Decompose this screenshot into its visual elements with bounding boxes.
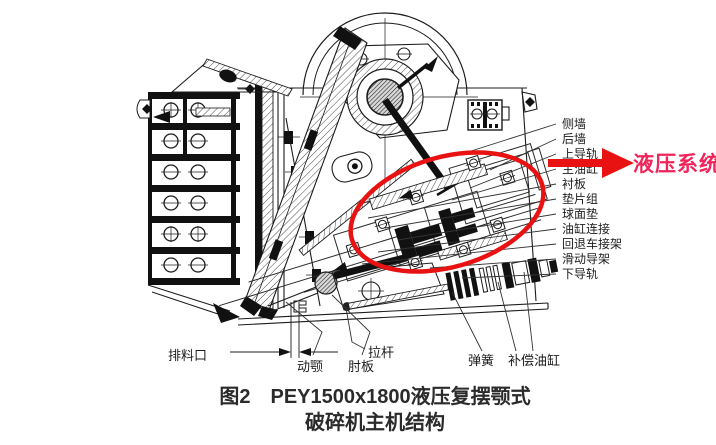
dim-arrow-right xyxy=(299,348,311,356)
label-liner-plate: 衬板 xyxy=(562,177,586,191)
eccentric-shaft xyxy=(367,79,403,115)
compensation-cylinder-body xyxy=(512,261,530,285)
left-arrow-marker xyxy=(153,111,170,123)
jaw-crusher-diagram: 侧墙 后墙 上导轨 主油缸 衬板 垫片组 球面垫 油缸连接 回退车接架 滑动导架… xyxy=(0,0,716,445)
label-retract-carriage-frame: 回退车接架 xyxy=(562,236,622,251)
label-movable-jaw: 动颚 xyxy=(297,359,323,374)
dim-arrow-left xyxy=(279,348,291,356)
bracket-detail-box xyxy=(468,100,509,130)
label-side-wall: 侧墙 xyxy=(562,117,586,131)
label-spring: 弹簧 xyxy=(468,353,494,368)
label-compensation-cylinder: 补偿油缸 xyxy=(508,353,560,368)
red-arrow-head xyxy=(602,148,634,178)
spring-coils xyxy=(445,268,479,301)
label-sliding-guide-frame: 滑动导架 xyxy=(562,252,610,266)
label-upper-guide-rail: 上导轨 xyxy=(562,147,598,161)
label-lower-guide-rail: 下导轨 xyxy=(562,267,598,281)
scanned-figure-page: 侧墙 后墙 上导轨 主油缸 衬板 垫片组 球面垫 油缸连接 回退车接架 滑动导架… xyxy=(0,0,716,445)
label-shim-group: 垫片组 xyxy=(562,191,598,206)
hydraulic-system-label: 液压系统 xyxy=(633,152,716,176)
pivot-component xyxy=(329,149,374,184)
label-rear-wall: 后墙 xyxy=(562,132,586,146)
label-toggle-plate: 肘板 xyxy=(348,359,374,374)
ball-pivot xyxy=(315,272,337,294)
right-part-labels: 侧墙 后墙 上导轨 主油缸 衬板 垫片组 球面垫 油缸连接 回退车接架 滑动导架… xyxy=(562,117,622,281)
label-cylinder-connection: 油缸连接 xyxy=(562,221,610,236)
discharge-arrow xyxy=(213,303,240,323)
label-spherical-pad: 球面垫 xyxy=(562,206,598,221)
label-discharge-opening: 排料口 xyxy=(168,348,207,363)
label-tension-rod: 拉杆 xyxy=(368,345,394,360)
caption-line1: 图2 PEY1500x1800液压复摆颚式 xyxy=(219,384,530,408)
caption-line2: 破碎机主机结构 xyxy=(305,410,445,434)
figure-caption: 图2 PEY1500x1800液压复摆颚式 破碎机主机结构 xyxy=(219,384,530,434)
